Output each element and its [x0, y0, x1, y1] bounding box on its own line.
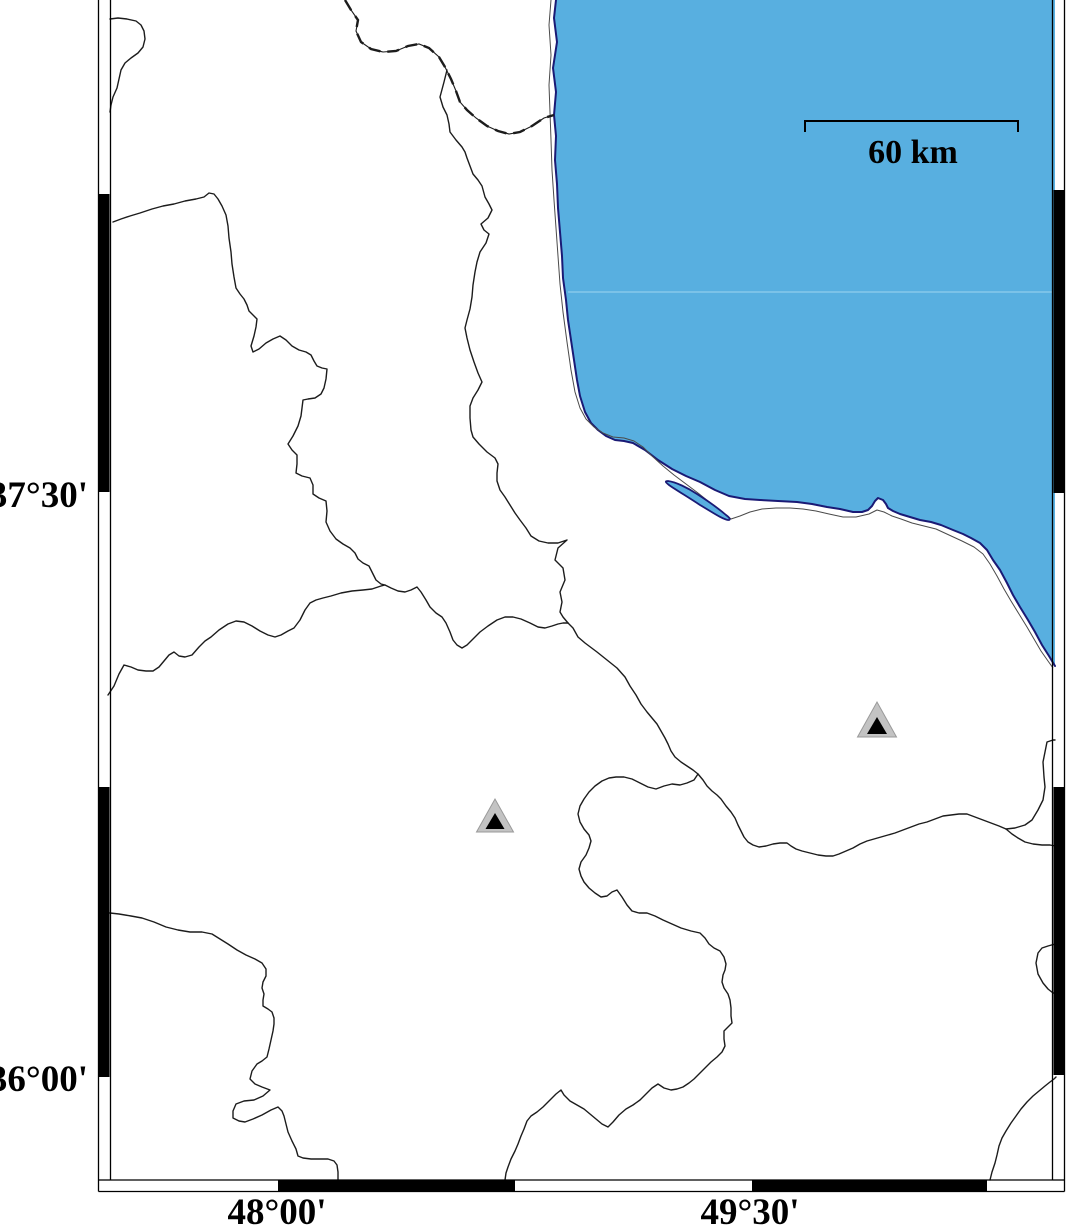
frame-tick-bottom: [278, 1181, 515, 1192]
lat-label-37-30: 37°30': [0, 475, 88, 516]
frame-tick-right: [1054, 787, 1065, 1075]
frame-tick-left: [99, 787, 110, 1077]
scale-bar-label: 60 km: [868, 134, 958, 171]
lon-label-49-30: 49°30': [700, 1192, 799, 1229]
map-canvas: 60 km 37°30' 36°00' 48°00' 49°30': [0, 0, 1066, 1229]
lon-label-48-00: 48°00': [227, 1192, 326, 1229]
map-figure: 60 km 37°30' 36°00' 48°00' 49°30': [0, 0, 1066, 1229]
frame-tick-bottom: [752, 1181, 987, 1192]
lat-label-36-00: 36°00': [0, 1059, 88, 1100]
frame-tick-right: [1054, 190, 1065, 493]
frame-tick-left: [99, 194, 110, 492]
